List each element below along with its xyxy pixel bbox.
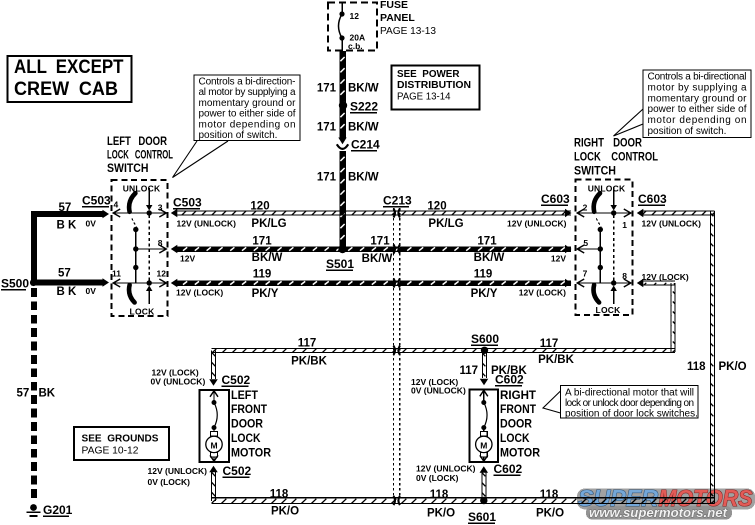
- svg-text:C213: C213: [383, 194, 412, 208]
- svg-text:PK/O: PK/O: [536, 508, 564, 520]
- svg-text:PAGE 13-13: PAGE 13-13: [380, 25, 436, 37]
- svg-text:LOCK: LOCK: [130, 307, 156, 317]
- svg-text:DISTRIBUTION: DISTRIBUTION: [397, 79, 471, 91]
- svg-text:c.b.: c.b.: [348, 41, 363, 51]
- svg-text:57: 57: [17, 388, 30, 400]
- svg-text:BK/W: BK/W: [252, 252, 283, 264]
- svg-text:C502: C502: [223, 464, 252, 478]
- svg-text:118: 118: [540, 489, 559, 501]
- svg-text:LEFT DOOR: LEFT DOOR: [107, 134, 167, 148]
- svg-text:SEE GROUNDS: SEE GROUNDS: [82, 433, 159, 445]
- svg-text:171: 171: [477, 236, 497, 248]
- svg-text:PAGE 10-12: PAGE 10-12: [82, 445, 139, 457]
- svg-text:PAGE 13-14: PAGE 13-14: [397, 91, 451, 103]
- svg-text:CREW CAB: CREW CAB: [14, 79, 118, 100]
- svg-text:C603: C603: [541, 192, 570, 206]
- svg-text:LOCK: LOCK: [231, 433, 261, 445]
- svg-text:motor depending on: motor depending on: [648, 115, 747, 126]
- svg-text:119: 119: [474, 269, 493, 281]
- svg-text:S222: S222: [350, 100, 378, 114]
- svg-text:C503: C503: [82, 194, 111, 208]
- svg-text:power to either side of: power to either side of: [199, 109, 296, 120]
- svg-text:4: 4: [114, 200, 119, 210]
- svg-text:LOCK: LOCK: [596, 305, 622, 315]
- svg-text:PK/BK: PK/BK: [291, 356, 327, 368]
- svg-text:M: M: [210, 440, 217, 450]
- svg-text:12V (LOCK): 12V (LOCK): [176, 288, 223, 298]
- svg-text:PK/LG: PK/LG: [251, 218, 286, 230]
- svg-text:LOCK: LOCK: [500, 433, 530, 445]
- svg-text:BK/W: BK/W: [362, 253, 393, 265]
- svg-text:S501: S501: [326, 257, 354, 271]
- svg-text:5: 5: [583, 238, 588, 248]
- svg-text:12: 12: [350, 11, 360, 21]
- svg-text:8: 8: [158, 238, 163, 248]
- svg-text:FUSE: FUSE: [380, 0, 408, 11]
- svg-text:PK/LG: PK/LG: [428, 218, 463, 230]
- svg-text:0V: 0V: [86, 219, 97, 229]
- svg-text:12V (UNLOCK): 12V (UNLOCK): [177, 218, 237, 228]
- svg-text:12V (UNLOCK): 12V (UNLOCK): [148, 466, 208, 476]
- svg-text:C502: C502: [222, 373, 251, 387]
- svg-text:120: 120: [250, 201, 269, 213]
- svg-text:power to either side of: power to either side of: [648, 104, 747, 115]
- svg-text:DOOR: DOOR: [231, 419, 264, 431]
- svg-text:C602: C602: [494, 462, 523, 476]
- svg-text:Controls a bi-direction-: Controls a bi-direction-: [199, 77, 296, 88]
- svg-text:RIGHT: RIGHT: [500, 390, 536, 402]
- svg-text:12V: 12V: [551, 253, 566, 263]
- svg-text:0V (UNLOCK): 0V (UNLOCK): [411, 386, 466, 396]
- svg-text:8: 8: [622, 271, 627, 281]
- svg-text:57: 57: [59, 202, 72, 214]
- svg-text:motor depending on: motor depending on: [199, 119, 296, 130]
- svg-text:119: 119: [253, 269, 272, 281]
- svg-text:7: 7: [583, 268, 588, 278]
- svg-text:B K: B K: [57, 286, 78, 298]
- svg-text:118: 118: [430, 489, 449, 501]
- svg-text:MOTOR: MOTOR: [231, 448, 272, 460]
- svg-text:118: 118: [687, 361, 706, 373]
- svg-text:LOCK CONTROL: LOCK CONTROL: [574, 150, 658, 164]
- svg-text:0V: 0V: [86, 286, 97, 296]
- svg-text:lock or unlock door depending: lock or unlock door depending on: [565, 398, 694, 409]
- svg-text:S500: S500: [1, 277, 29, 291]
- svg-text:DOOR: DOOR: [500, 419, 533, 431]
- svg-text:0V (UNLOCK): 0V (UNLOCK): [151, 377, 206, 387]
- svg-text:BK: BK: [39, 388, 56, 400]
- svg-text:0V (LOCK): 0V (LOCK): [148, 477, 191, 487]
- svg-text:LEFT: LEFT: [231, 390, 258, 402]
- svg-text:ALL EXCEPT: ALL EXCEPT: [14, 57, 124, 78]
- svg-text:PK/O: PK/O: [271, 506, 299, 518]
- svg-text:motor by supplying a: motor by supplying a: [648, 82, 747, 93]
- svg-text:PK/Y: PK/Y: [471, 288, 498, 300]
- svg-text:A bi-directional motor that: A bi-directional motor that will: [565, 388, 694, 399]
- svg-text:12V (UNLOCK): 12V (UNLOCK): [416, 464, 476, 474]
- svg-text:117: 117: [459, 365, 478, 377]
- svg-text:PK/BK: PK/BK: [538, 354, 574, 366]
- svg-text:120: 120: [427, 201, 446, 213]
- svg-text:C602: C602: [495, 373, 524, 387]
- svg-text:www.supermotors.net: www.supermotors.net: [589, 505, 728, 520]
- svg-text:171: 171: [317, 172, 337, 184]
- svg-text:al motor by supplying a: al motor by supplying a: [199, 87, 296, 98]
- svg-text:C503: C503: [173, 196, 202, 210]
- svg-text:171: 171: [370, 236, 390, 248]
- svg-text:11: 11: [112, 268, 121, 278]
- svg-text:position of door lock switches: position of door lock switches.: [565, 408, 698, 419]
- svg-text:117: 117: [540, 338, 559, 350]
- svg-text:BK/W: BK/W: [348, 122, 379, 134]
- svg-text:C603: C603: [638, 192, 667, 206]
- svg-text:S600: S600: [471, 332, 499, 346]
- svg-text:PANEL: PANEL: [380, 12, 415, 24]
- svg-text:12V: 12V: [180, 253, 195, 263]
- svg-text:171: 171: [317, 122, 337, 134]
- svg-text:S601: S601: [468, 510, 496, 524]
- svg-text:momentary ground or: momentary ground or: [199, 98, 297, 109]
- svg-text:2: 2: [583, 202, 588, 212]
- svg-text:LOCK CONTROL: LOCK CONTROL: [107, 148, 173, 162]
- svg-text:MOTOR: MOTOR: [500, 448, 541, 460]
- svg-text:BK/W: BK/W: [348, 83, 379, 95]
- svg-text:PK/O: PK/O: [719, 361, 747, 373]
- svg-text:12V (LOCK): 12V (LOCK): [519, 288, 566, 298]
- svg-text:PK/O: PK/O: [427, 508, 455, 520]
- svg-text:BK/W: BK/W: [348, 172, 379, 184]
- svg-text:0V (LOCK): 0V (LOCK): [416, 473, 459, 483]
- svg-text:BK/W: BK/W: [474, 252, 505, 264]
- svg-text:PK/Y: PK/Y: [252, 288, 279, 300]
- svg-text:M: M: [480, 440, 487, 450]
- svg-text:UNLOCK: UNLOCK: [123, 184, 161, 194]
- svg-text:171: 171: [317, 83, 337, 95]
- svg-text:12V (UNLOCK): 12V (UNLOCK): [642, 218, 702, 228]
- svg-text:position of switch.: position of switch.: [648, 126, 727, 137]
- svg-text:3: 3: [158, 203, 163, 213]
- svg-text:1: 1: [622, 220, 627, 230]
- svg-text:UNLOCK: UNLOCK: [588, 184, 626, 194]
- svg-text:RIGHT DOOR: RIGHT DOOR: [574, 136, 642, 150]
- svg-text:SWITCH: SWITCH: [574, 164, 616, 178]
- svg-text:FRONT: FRONT: [231, 404, 267, 416]
- svg-text:SWITCH: SWITCH: [107, 161, 149, 175]
- svg-text:C214: C214: [351, 138, 380, 152]
- svg-text:12V (UNLOCK): 12V (UNLOCK): [507, 218, 567, 228]
- svg-text:117: 117: [298, 338, 317, 350]
- svg-text:12: 12: [157, 268, 167, 278]
- svg-text:Controls a bi-directional: Controls a bi-directional: [648, 72, 747, 83]
- svg-text:G201: G201: [43, 503, 73, 517]
- svg-text:171: 171: [252, 236, 272, 248]
- svg-text:FRONT: FRONT: [500, 404, 536, 416]
- svg-text:118: 118: [270, 489, 289, 501]
- svg-text:B K: B K: [57, 220, 78, 232]
- svg-text:57: 57: [58, 268, 71, 280]
- svg-text:position of switch.: position of switch.: [199, 130, 278, 141]
- svg-text:momentary ground or: momentary ground or: [648, 93, 748, 104]
